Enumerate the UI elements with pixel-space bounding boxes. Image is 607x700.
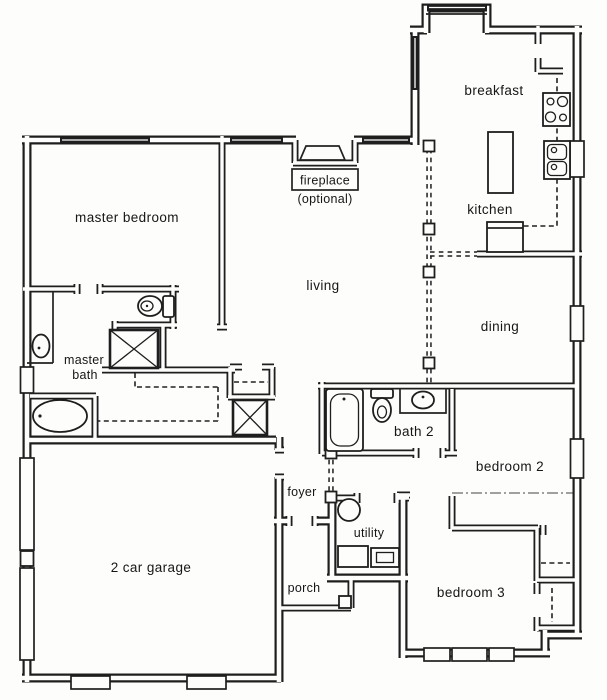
master-sink: [33, 335, 50, 358]
label-dining: dining: [481, 319, 519, 334]
water-heater: [338, 499, 360, 521]
label-master-bath-2: bath: [72, 368, 98, 382]
label-master-bedroom: master bedroom: [75, 210, 179, 225]
bedroom3-window: [452, 648, 487, 661]
dryer: [371, 548, 399, 567]
label-porch: porch: [288, 581, 321, 595]
kitchen-fixtures: [487, 93, 570, 252]
label-fireplace: fireplace: [300, 174, 350, 188]
column-post: [424, 267, 435, 278]
label-living: living: [306, 278, 339, 293]
column-post: [424, 224, 435, 235]
column-post: [424, 141, 435, 152]
label-bedroom2: bedroom 2: [476, 459, 544, 474]
label-bedroom3: bedroom 3: [437, 585, 505, 600]
label-utility: utility: [354, 526, 385, 540]
master-closet-dashed: [95, 373, 218, 421]
floor-plan-svg: master bedroom living breakfast kitchen …: [0, 0, 607, 700]
window-mullion: [21, 551, 34, 566]
master-toilet-tank: [163, 296, 174, 317]
master-bath-window: [21, 367, 34, 393]
bar-counter: [487, 222, 523, 252]
bath2-sink: [412, 392, 434, 409]
kitchen-island: [488, 132, 513, 193]
floor-plan: master bedroom living breakfast kitchen …: [0, 0, 607, 700]
label-fireplace-note: (optional): [297, 192, 352, 206]
garage-window: [20, 458, 34, 550]
porch-post: [339, 596, 351, 608]
washer: [338, 546, 368, 567]
column-post: [424, 358, 435, 369]
bedroom3-window: [424, 648, 450, 661]
label-breakfast: breakfast: [464, 83, 523, 98]
bath2-fixtures: [326, 388, 446, 451]
label-kitchen: kitchen: [467, 202, 513, 217]
label-garage: 2 car garage: [111, 560, 192, 575]
bedroom3-window: [489, 648, 514, 661]
bath2-toilet-tank: [371, 389, 393, 398]
dining-window: [571, 306, 584, 341]
column-post: [326, 492, 337, 503]
label-bath2: bath 2: [394, 424, 434, 439]
label-master-bath-1: master: [64, 353, 104, 367]
garage-window: [20, 568, 34, 660]
garage-door: [71, 676, 110, 689]
fireplace-firebox: [300, 146, 345, 160]
bedroom2-window: [571, 439, 584, 478]
garage-door: [187, 676, 226, 689]
label-foyer: foyer: [287, 485, 316, 499]
kitchen-window: [570, 141, 584, 177]
